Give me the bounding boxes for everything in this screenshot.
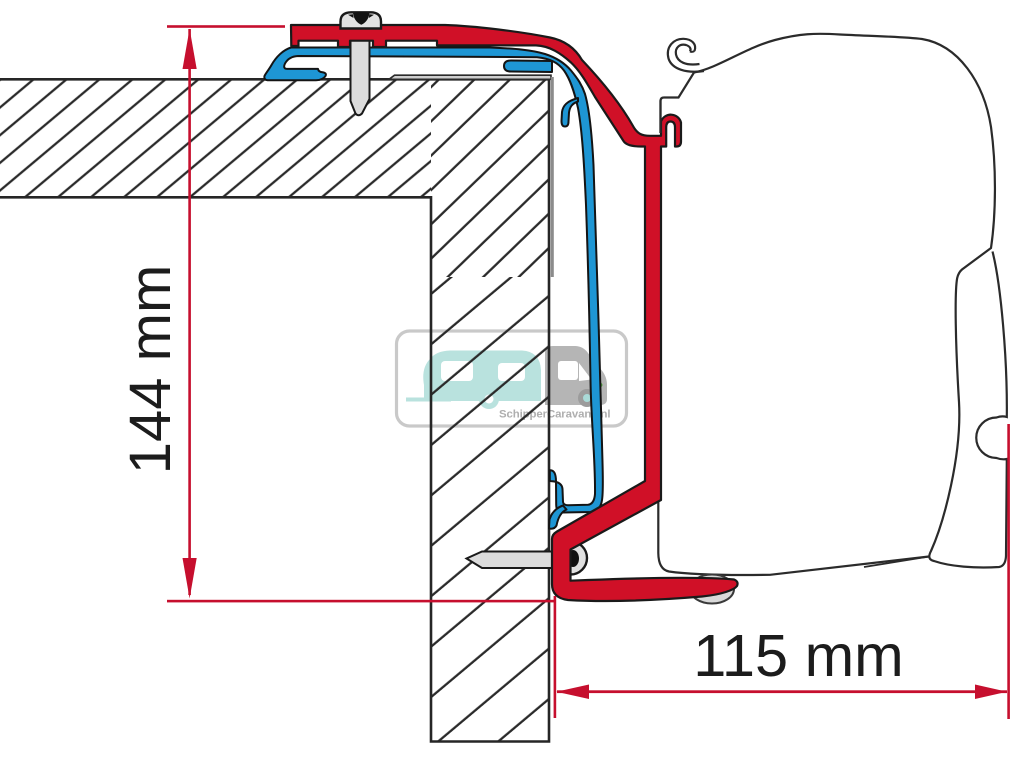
svg-text:115 mm: 115 mm bbox=[693, 622, 904, 689]
svg-text:144 mm: 144 mm bbox=[118, 265, 183, 475]
